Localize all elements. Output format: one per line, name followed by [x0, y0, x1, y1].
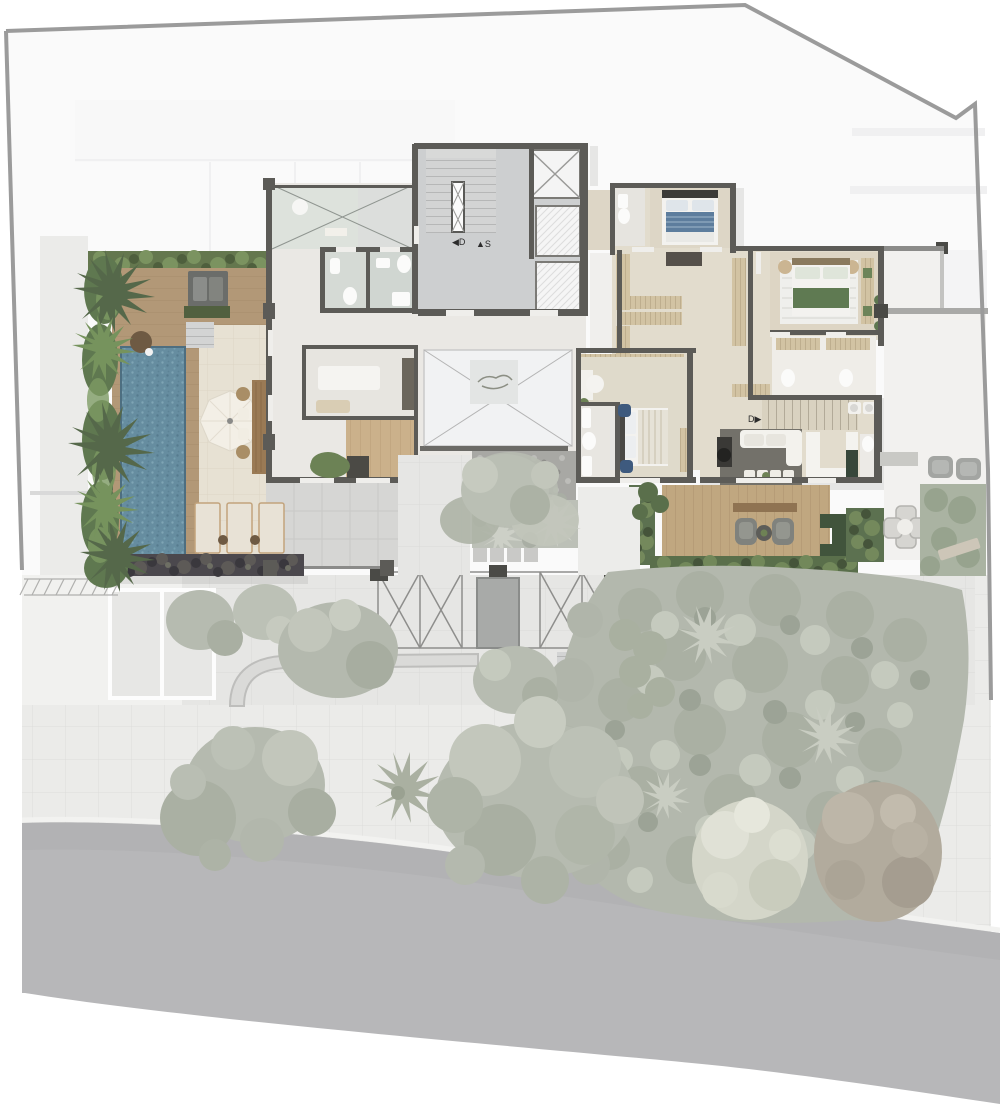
svg-text:▲S: ▲S: [476, 239, 491, 249]
svg-text:◀D: ◀D: [452, 237, 466, 247]
svg-text:D▶: D▶: [748, 414, 761, 424]
